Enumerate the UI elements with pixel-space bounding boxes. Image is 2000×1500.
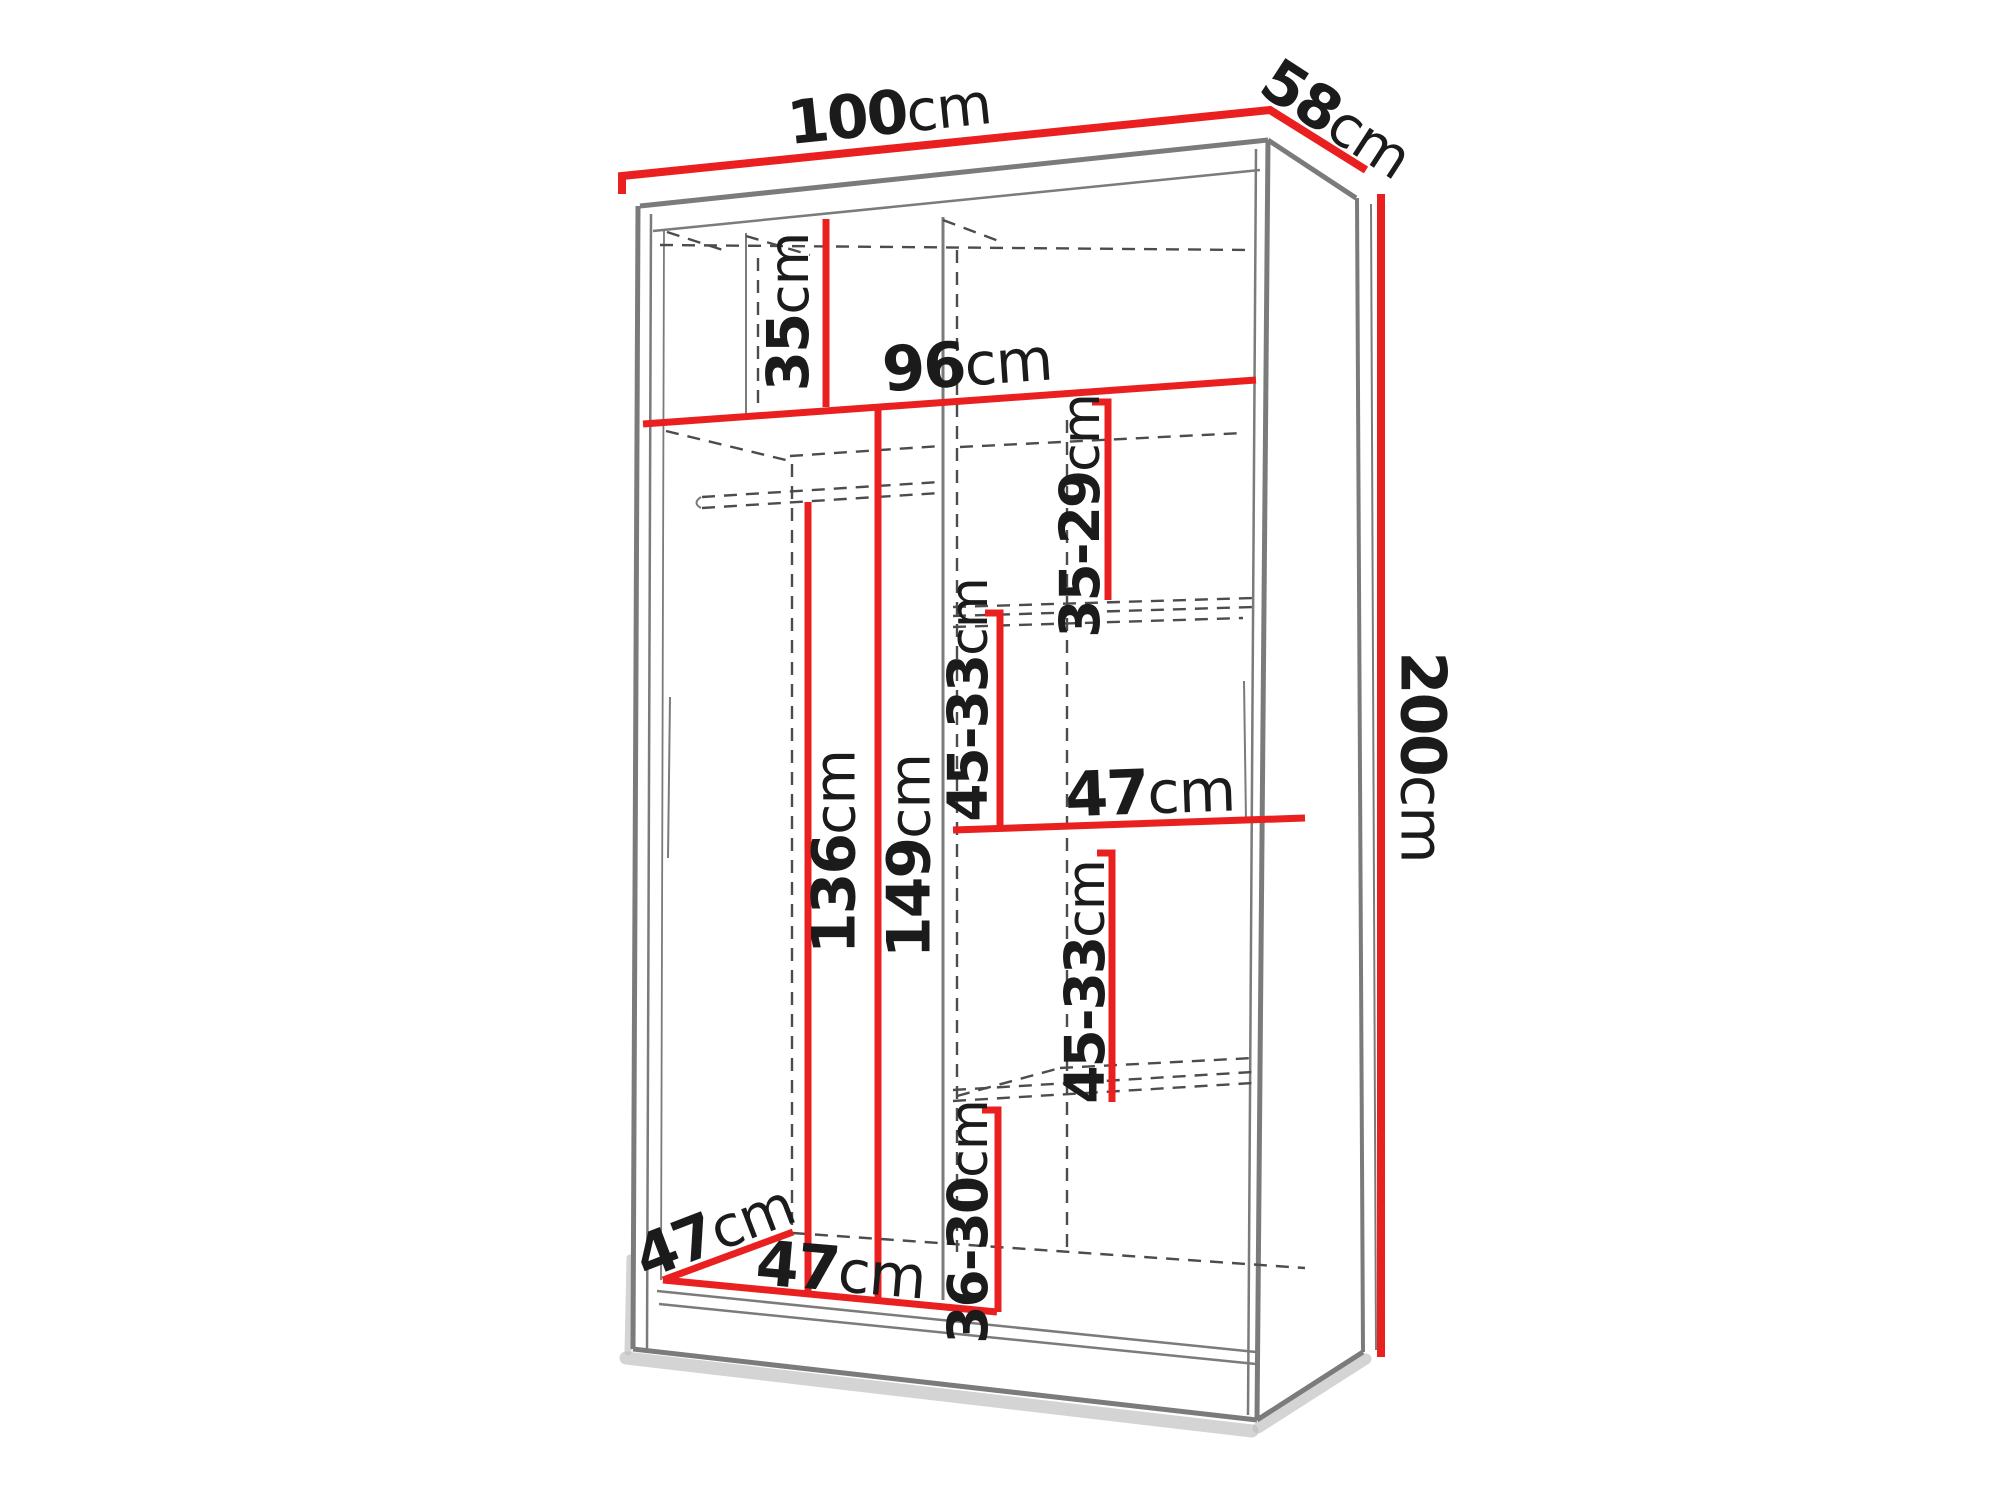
left-edge-inner — [647, 214, 651, 1349]
back-top-edge-dashed — [660, 245, 1250, 250]
label-height-right-unit: cm — [1388, 775, 1457, 863]
back-right-edge-highlight — [1371, 204, 1376, 1350]
label-top-shelf-height: 35cm — [754, 233, 822, 392]
right-front-edge-inner — [1248, 149, 1256, 1415]
label-right-gap-upper-unit: cm — [940, 578, 1000, 656]
label-width-top-number: 100 — [784, 77, 910, 159]
label-right-gap-bottom: 36-30cm — [936, 1100, 1000, 1344]
wardrobe-dimension-diagram: 100cm 58cm 200cm 35cm 96cm 35-29cm 45-33… — [0, 0, 2000, 1500]
label-bottom-width: 47cm — [753, 1226, 929, 1314]
label-right-gap-top-unit: cm — [1052, 394, 1112, 472]
dim-line-width-and-depth-top — [622, 110, 1366, 194]
label-hanging-height-left-number: 136 — [800, 835, 870, 954]
hanging-rod-bottom — [702, 493, 940, 508]
left-wall-highlight — [668, 697, 670, 858]
label-right-gap-upper: 45-33cm — [936, 578, 1000, 822]
back-right-edge — [1357, 198, 1363, 1352]
label-middle-shelf-width: 47cm — [1064, 752, 1236, 831]
label-interior-width-number: 96 — [880, 328, 967, 407]
label-right-gap-lower: 45-33cm — [1053, 860, 1117, 1104]
label-top-shelf-height-unit: cm — [757, 233, 821, 315]
label-right-gap-lower-unit: cm — [1057, 860, 1117, 938]
label-middle-shelf-width-unit: cm — [1146, 755, 1236, 827]
shadow-bottom-side — [1258, 1359, 1366, 1428]
diagram-canvas: 100cm 58cm 200cm 35cm 96cm 35-29cm 45-33… — [0, 0, 2000, 1500]
shelf-underside-diagonal — [666, 431, 790, 461]
label-hanging-height-left-unit: cm — [803, 750, 869, 835]
label-right-gap-upper-number: 45-33 — [936, 656, 1000, 822]
top-depth-diagonal-left — [667, 232, 726, 251]
label-height-right: 200cm — [1387, 651, 1460, 862]
label-right-gap-top-number: 35-29 — [1048, 472, 1112, 638]
top-front-edge — [640, 140, 1268, 206]
hanging-rod-end-cap — [697, 497, 702, 508]
label-width-top-unit: cm — [903, 71, 994, 146]
label-hanging-height-right: 149cm — [875, 754, 945, 958]
left-edge-outer — [633, 206, 638, 1349]
shelf-underside-back-edge — [790, 446, 941, 456]
label-bottom-width-unit: cm — [835, 1236, 928, 1312]
label-right-gap-lower-number: 45-33 — [1053, 938, 1117, 1104]
left-interior-wall-line — [661, 229, 664, 1280]
bottom-side-edge — [1257, 1352, 1363, 1420]
label-bottom-width-number: 47 — [753, 1226, 841, 1306]
label-right-gap-bottom-number: 36-30 — [936, 1178, 1000, 1344]
label-top-shelf-height-number: 35 — [754, 315, 822, 392]
label-right-gap-top: 35-29cm — [1048, 394, 1112, 638]
label-hanging-height-left: 136cm — [800, 750, 870, 954]
label-interior-width: 96cm — [880, 321, 1055, 406]
label-interior-width-unit: cm — [962, 324, 1054, 399]
label-right-gap-bottom-unit: cm — [940, 1100, 1000, 1178]
label-width-top: 100cm — [784, 68, 994, 159]
shelf-c-depth-diagonal — [957, 1068, 1060, 1096]
label-hanging-height-right-unit: cm — [878, 754, 944, 839]
top-depth-diagonal-partition — [943, 220, 1004, 243]
right-wall-highlight — [1244, 681, 1246, 821]
label-height-right-number: 200 — [1387, 651, 1460, 774]
label-middle-shelf-width-number: 47 — [1064, 755, 1149, 831]
ceiling-inner-edge — [653, 170, 1260, 231]
label-hanging-height-right-number: 149 — [875, 839, 945, 958]
shadow-left-edge — [628, 1258, 630, 1352]
bottom-front-edge — [633, 1349, 1257, 1420]
shadow-bottom-front — [626, 1358, 1252, 1431]
right-front-edge-outer — [1257, 140, 1268, 1420]
label-depth-top: 58cm — [1248, 45, 1424, 193]
